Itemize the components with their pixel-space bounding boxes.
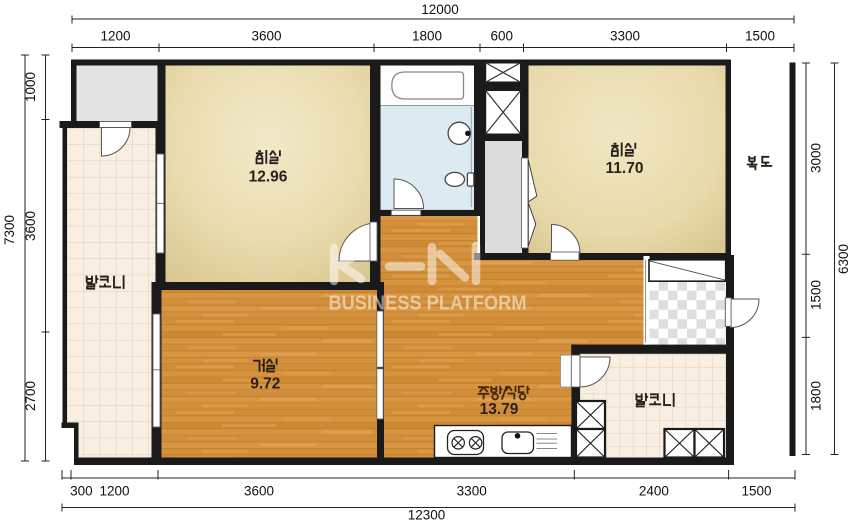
svg-text:11.70: 11.70 <box>606 160 644 177</box>
svg-text:9.72: 9.72 <box>250 376 280 393</box>
svg-text:1500: 1500 <box>741 483 771 498</box>
svg-text:1800: 1800 <box>809 381 824 411</box>
svg-text:300: 300 <box>70 483 93 498</box>
svg-text:1500: 1500 <box>809 280 824 310</box>
svg-text:7300: 7300 <box>2 215 17 245</box>
svg-text:1500: 1500 <box>745 28 775 43</box>
svg-text:1800: 1800 <box>412 28 442 43</box>
svg-text:12000: 12000 <box>421 2 459 17</box>
svg-text:13.79: 13.79 <box>480 401 519 418</box>
svg-text:12300: 12300 <box>408 507 446 522</box>
svg-text:12.96: 12.96 <box>249 169 288 186</box>
svg-text:2700: 2700 <box>23 381 38 411</box>
svg-text:3300: 3300 <box>457 483 487 498</box>
svg-text:2400: 2400 <box>639 483 669 498</box>
svg-text:1200: 1200 <box>100 28 130 43</box>
svg-text:3600: 3600 <box>244 483 274 498</box>
svg-text:BUSINESS PLATFORM: BUSINESS PLATFORM <box>329 293 527 315</box>
svg-text:600: 600 <box>491 28 514 43</box>
svg-text:3000: 3000 <box>809 143 824 173</box>
svg-text:3600: 3600 <box>23 211 38 241</box>
svg-text:1200: 1200 <box>99 483 129 498</box>
svg-text:1000: 1000 <box>23 72 38 102</box>
svg-text:3300: 3300 <box>610 28 640 43</box>
svg-text:3600: 3600 <box>251 28 281 43</box>
svg-text:6300: 6300 <box>836 244 851 274</box>
